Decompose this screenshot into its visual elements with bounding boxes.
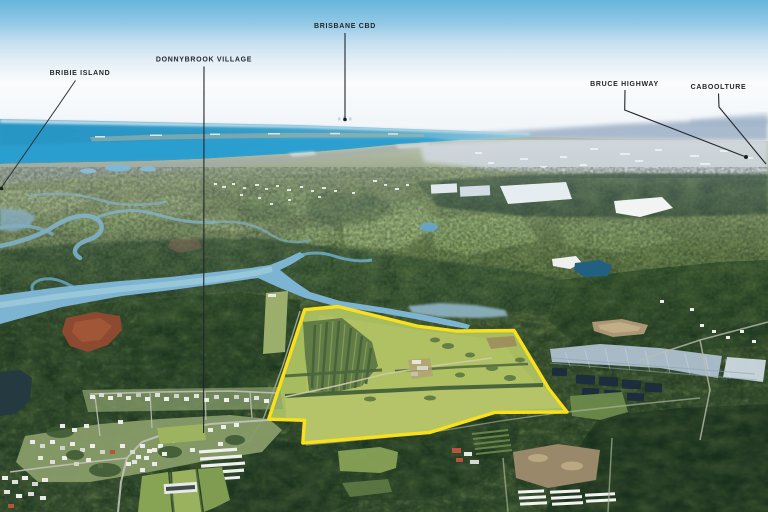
svg-text:BRISBANE CBD: BRISBANE CBD — [314, 23, 376, 30]
svg-text:DONNYBROOK VILLAGE: DONNYBROOK VILLAGE — [156, 57, 252, 64]
svg-text:BRUCE HIGHWAY: BRUCE HIGHWAY — [590, 81, 659, 88]
svg-text:BRIBIE ISLAND: BRIBIE ISLAND — [50, 70, 111, 77]
svg-text:CABOOLTURE: CABOOLTURE — [691, 84, 747, 91]
